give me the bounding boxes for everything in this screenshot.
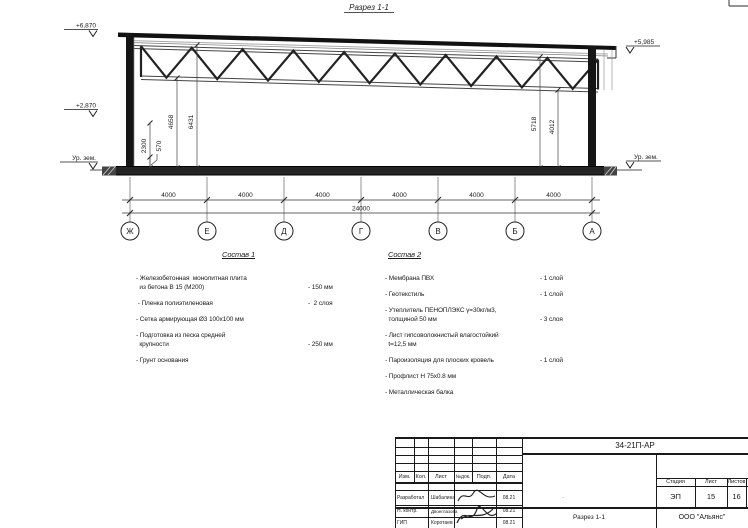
tb-name-dvoeglazova: Двоеглазова: [429, 505, 456, 517]
list-item: - Лист гипсоволокнистый влагостойкий t=1…: [385, 331, 585, 349]
drawing-name: Разрез 1-1: [522, 507, 656, 528]
list-item: - Металлическая балка: [385, 388, 585, 397]
tb-col-list: Лист: [428, 471, 454, 482]
item-value: - 2 слоя: [308, 299, 368, 308]
tb-role-nkontr: Н. контр.: [395, 505, 430, 517]
composition-2-title: Состав 2: [388, 250, 421, 259]
item-text: - Профлист Н 75х0.8 мм: [385, 372, 540, 381]
item-text: - Сетка армирующая Ø3 100х100 мм: [136, 315, 308, 324]
tb-date-3: 08.21: [496, 517, 522, 528]
item-value: - 250 мм: [308, 340, 368, 349]
tb-role-razrabotal: Разработал: [395, 490, 430, 505]
svg-text:+6,870: +6,870: [76, 23, 96, 30]
columns: [126, 33, 612, 169]
sheet-header: Лист: [695, 478, 727, 486]
item-text: - Лист гипсоволокнистый влагостойкий t=1…: [385, 331, 540, 349]
item-value: - 150 мм: [308, 283, 368, 292]
company-name: ООО "Альянс": [656, 507, 748, 528]
tb-name-korotaev: Коротаев: [429, 517, 456, 528]
frame-corner: [729, 0, 748, 6]
item-text: - Грунт основания: [136, 356, 308, 365]
dim-5718: 5718: [531, 116, 538, 131]
item-text: - Железобетонная монолитная плита из бет…: [136, 274, 308, 292]
svg-text:+2,870: +2,870: [76, 103, 96, 110]
span-dim: 4000: [546, 192, 561, 199]
horizontal-dimensions: 4000 4000 4000 4000 4000 4000 24000: [122, 177, 600, 222]
list-item: - Железобетонная монолитная плита из бет…: [136, 274, 368, 292]
item-value: - 1 слой: [540, 290, 585, 299]
axis-bubbles: Ж Е Д Г В Б А: [121, 222, 601, 240]
axis-label: Е: [204, 227, 209, 236]
title-block: 34-21П-АР Изм. Кол. Лист №док. Подп. Дат…: [395, 437, 748, 528]
list-item: - Геотекстиль - 1 слой: [385, 290, 585, 299]
tb-col-podp: Подп.: [472, 471, 496, 482]
dim-2300: 2300: [141, 138, 148, 153]
stage-value: ЭП: [656, 486, 695, 507]
span-dim: 4000: [469, 192, 484, 199]
elevation-mark-left-ground: Ур. зем.: [60, 155, 98, 169]
sheets-total: 16: [727, 486, 746, 507]
axis-label: В: [435, 227, 440, 236]
composition-list-1: Состав 1 - Железобетонная монолитная пли…: [136, 250, 368, 372]
tb-date-2: 08.21: [496, 505, 522, 517]
item-text: - Геотекстиль: [385, 290, 540, 299]
list-item: - Утеплитель ПЕНОПЛЭКС γ=30кг/м3, толщин…: [385, 306, 585, 324]
tb-col-data: Дата: [496, 471, 522, 482]
dim-4012: 4012: [549, 119, 556, 134]
list-item: - Пленка полиэтиленовая - 2 слоя: [136, 299, 368, 308]
elevation-mark-left-mid: +2,870: [64, 103, 98, 117]
dim-570: 570: [156, 140, 163, 151]
field-dot: .: [559, 492, 567, 502]
sheet-number: 15: [695, 486, 727, 507]
list-item: - Сетка армирующая Ø3 100х100 мм: [136, 315, 368, 324]
svg-text:Ур. зем.: Ур. зем.: [634, 154, 658, 161]
elevation-mark-right-ground: Ур. зем.: [626, 154, 661, 168]
span-dim: 4000: [315, 192, 330, 199]
tb-col-kol: Кол.: [414, 471, 428, 482]
item-text: - Металлическая балка: [385, 388, 540, 397]
list-item: - Мембрана ПВХ - 1 слой: [385, 274, 585, 283]
list-item: - Профлист Н 75х0.8 мм: [385, 372, 585, 381]
tb-role-gip: ГИП: [395, 517, 430, 528]
floor-slab: [90, 167, 642, 176]
signature: [453, 503, 499, 528]
drawing-heading: Разрез 1-1: [349, 3, 389, 12]
axis-label: Ж: [126, 227, 134, 236]
tb-col-ndok: №док.: [454, 471, 472, 482]
elevation-mark-left-top: +6,870: [64, 23, 98, 37]
elevation-mark-right-top: +5,985: [626, 39, 660, 53]
item-value: - 1 слой: [540, 356, 585, 365]
item-value: - 1 слой: [540, 274, 585, 283]
dim-4658: 4658: [168, 114, 175, 129]
list-item: - Грунт основания: [136, 356, 368, 365]
item-value: - 3 слоя: [540, 315, 585, 324]
roof-truss: [134, 46, 598, 93]
list-item: - Пароизоляция для плоских кровель - 1 с…: [385, 356, 585, 365]
roof: [118, 33, 616, 59]
item-text: - Подготовка из песка средней крупности: [136, 331, 308, 349]
total-dim: 24000: [352, 206, 370, 213]
list-item: - Подготовка из песка средней крупности …: [136, 331, 368, 349]
composition-1-title: Состав 1: [222, 250, 255, 259]
tb-date-1: 08.21: [496, 490, 522, 505]
dim-6431: 6431: [188, 114, 195, 129]
item-text: - Утеплитель ПЕНОПЛЭКС γ=30кг/м3, толщин…: [385, 306, 540, 324]
svg-text:+5,985: +5,985: [634, 39, 654, 46]
item-text: - Мембрана ПВХ: [385, 274, 540, 283]
tb-col-izm: Изм.: [395, 471, 414, 482]
axis-label: А: [589, 227, 595, 236]
axis-label: Г: [359, 227, 364, 236]
composition-list-2: Состав 2 - Мембрана ПВХ - 1 слой - Геоте…: [385, 250, 585, 404]
span-dim: 4000: [238, 192, 253, 199]
axis-label: Д: [281, 227, 287, 236]
sheets-header: Листов: [727, 478, 746, 486]
svg-text:Ур. зем.: Ур. зем.: [72, 155, 96, 162]
tb-name-shabalina: Шабалина: [429, 490, 456, 505]
stage-header: Стадия: [656, 478, 695, 486]
span-dim: 4000: [392, 192, 407, 199]
item-text: - Пароизоляция для плоских кровель: [385, 356, 540, 365]
span-dim: 4000: [161, 192, 176, 199]
item-text: - Пленка полиэтиленовая: [136, 299, 308, 308]
axis-label: Б: [512, 227, 517, 236]
document-code: 34-21П-АР: [522, 437, 748, 453]
